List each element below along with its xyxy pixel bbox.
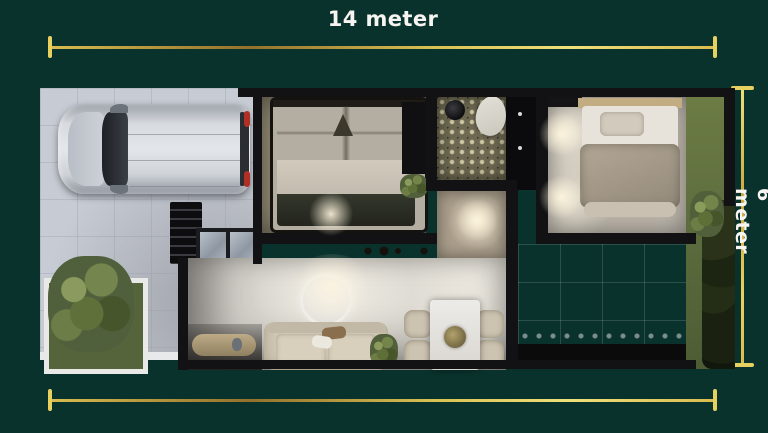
bed-pillow	[600, 112, 644, 136]
parked-car	[58, 104, 250, 194]
patio-tiles	[518, 244, 686, 360]
bed-bolster	[584, 202, 676, 217]
width-dimension-label: 14 meter	[283, 7, 483, 31]
bathroom-sink	[445, 100, 465, 120]
bottom-dimension-line	[50, 399, 716, 402]
console-table	[192, 334, 256, 356]
car-side-mirror	[110, 104, 128, 113]
bed-duvet	[277, 194, 415, 226]
bed-sheet	[277, 160, 415, 194]
car-taillight	[244, 111, 250, 127]
wall	[178, 258, 188, 370]
top-line-left-tick	[48, 36, 52, 58]
wall	[426, 180, 517, 191]
wall	[724, 88, 735, 206]
bedroom-plant	[400, 174, 428, 198]
table-centerpiece	[444, 326, 466, 348]
poster-background: 14 meter 6 meter	[0, 0, 768, 433]
car-windshield	[102, 112, 128, 186]
patio-wall-shadow	[518, 344, 686, 360]
bottom-line-left-tick	[48, 389, 52, 411]
top-dimension-line	[50, 46, 716, 49]
wall	[253, 233, 437, 244]
garden-tree	[48, 256, 134, 352]
yard-tree	[690, 191, 724, 237]
wall	[178, 360, 696, 369]
patio-plants-row	[518, 328, 686, 344]
car-hood	[68, 112, 104, 186]
bed-duvet	[580, 144, 680, 208]
car-roof	[128, 110, 244, 188]
wardrobe	[402, 102, 428, 174]
glass-pane	[200, 232, 226, 260]
bedroom-closet	[548, 97, 582, 107]
second-bed	[578, 98, 682, 220]
round-rug	[300, 274, 352, 326]
dining-chair	[404, 310, 432, 338]
hallway-floor	[437, 191, 506, 258]
wall	[536, 233, 696, 244]
floor-plan	[40, 88, 735, 369]
bottom-line-right-tick	[713, 389, 717, 411]
accent-cushion	[333, 114, 353, 136]
wall	[536, 88, 548, 244]
top-line-right-tick	[713, 36, 717, 58]
wall	[238, 88, 735, 97]
dining-chair	[476, 310, 504, 338]
wall	[426, 88, 437, 190]
car-side-mirror	[110, 185, 128, 194]
kitchen-counter	[262, 244, 437, 258]
wall	[506, 190, 518, 369]
console-decor	[232, 338, 242, 351]
vanity-knob	[518, 146, 522, 150]
vanity-knob	[518, 112, 522, 116]
car-taillight	[244, 171, 250, 187]
